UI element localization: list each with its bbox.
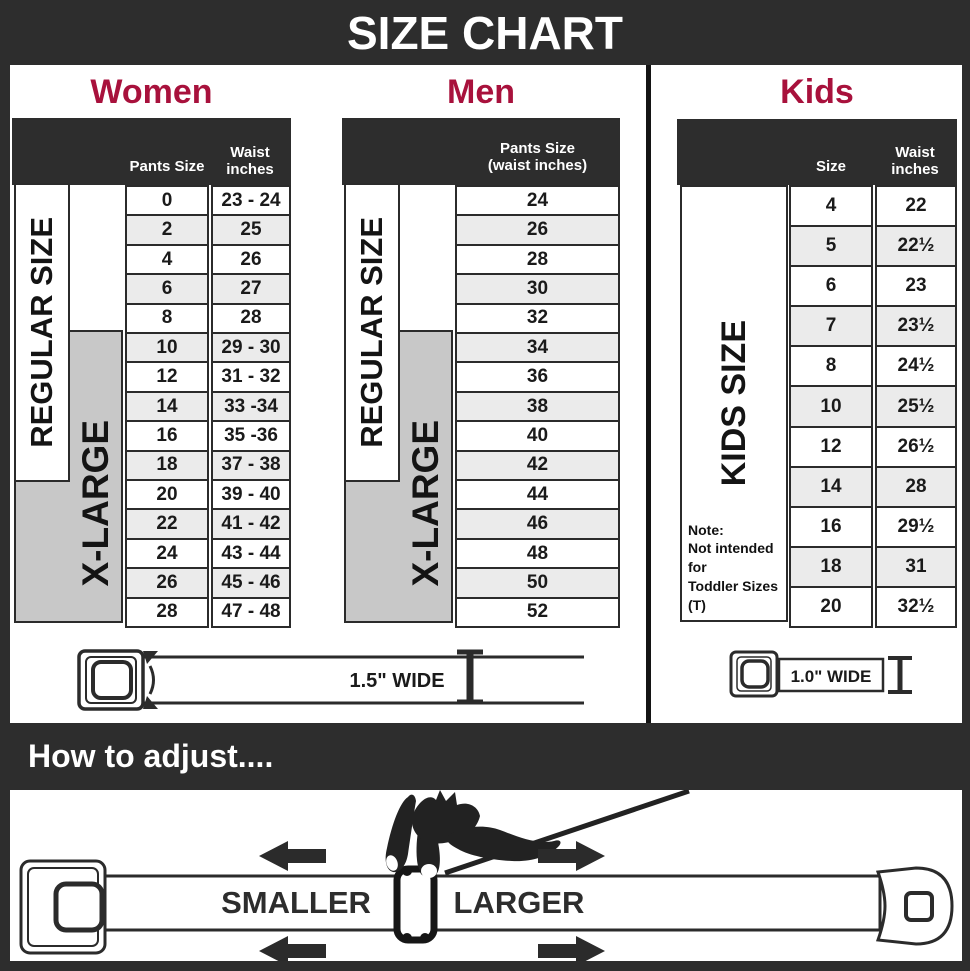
table-row: 14 28 (789, 466, 957, 508)
table-row: 52 (455, 597, 620, 628)
arrow-left-icon (259, 841, 326, 871)
belt-width-label: 1.0" WIDE (791, 667, 872, 686)
pants-size-cell: 32 (455, 303, 620, 334)
waist-header-line2: inches (891, 161, 939, 179)
kids-size-table: Size Waist inches KIDS SIZE Note: Not in… (677, 119, 957, 628)
adjust-heading: How to adjust.... (0, 738, 273, 775)
men-header-line2: (waist inches) (488, 157, 587, 175)
women-size-table: Pants Size Waist inches REGULAR SIZE X-L… (12, 118, 291, 628)
kids-size-cell: 7 (789, 305, 873, 347)
waist-cell: 29 - 30 (211, 332, 291, 363)
pants-size-cell: 48 (455, 538, 620, 569)
kids-waist-header: Waist inches (873, 144, 957, 185)
women-rows: 0 23 - 24 2 25 4 26 6 27 8 28 10 29 - 30… (125, 185, 291, 628)
pants-size-cell: 42 (455, 450, 620, 481)
waist-cell: 35 -36 (211, 420, 291, 451)
table-row: 6 23 (789, 265, 957, 307)
section-divider (646, 65, 651, 723)
fingertip (421, 864, 437, 878)
table-row: 26 45 - 46 (125, 567, 291, 598)
waist-cell: 23 (875, 265, 957, 307)
kids-size-label: KIDS SIZE (715, 320, 754, 486)
waist-cell: 39 - 40 (211, 479, 291, 510)
kids-heading: Kids (677, 71, 957, 113)
pants-size-cell: 12 (125, 361, 209, 392)
belt-width-label: 1.5" WIDE (349, 670, 444, 692)
size-chart-infographic: { "title": "SIZE CHART", "colors": { "fr… (0, 0, 970, 971)
pants-size-cell: 16 (125, 420, 209, 451)
pants-size-cell: 40 (455, 420, 620, 451)
belt-tip (878, 868, 952, 944)
kids-size-cell: 5 (789, 225, 873, 267)
waist-cell: 23 - 24 (211, 185, 291, 216)
women-heading: Women (12, 71, 291, 113)
waist-cell: 22 (875, 185, 957, 227)
table-row: 4 22 (789, 185, 957, 227)
pants-size-cell: 20 (125, 479, 209, 510)
title-band: SIZE CHART (0, 0, 970, 65)
waist-cell: 43 - 44 (211, 538, 291, 569)
pants-size-cell: 52 (455, 597, 620, 628)
waist-header-line2: inches (226, 161, 274, 179)
women-xlarge-label-wrap: X-LARGE (70, 383, 121, 623)
kids-belt-illustration: 1.0" WIDE (720, 640, 932, 710)
women-xlarge-label: X-LARGE (75, 420, 117, 587)
waist-cell: 31 (875, 546, 957, 588)
kids-size-cell: 12 (789, 426, 873, 468)
pants-size-cell: 10 (125, 332, 209, 363)
waist-cell: 31 - 32 (211, 361, 291, 392)
table-row: 10 29 - 30 (125, 332, 291, 363)
table-row: 34 (455, 332, 620, 363)
pants-size-cell: 26 (455, 214, 620, 245)
men-table-header: Pants Size (waist inches) (342, 118, 620, 185)
pants-size-cell: 34 (455, 332, 620, 363)
adjust-illustration-panel: SMALLER LARGER (10, 790, 962, 961)
pants-size-cell: 24 (455, 185, 620, 216)
table-row: 28 (455, 244, 620, 275)
size-tables-panel: Women Men Kids Pants Size Waist inches R… (10, 65, 962, 723)
kids-size-box: KIDS SIZE Note: Not intended for Toddler… (680, 185, 788, 622)
table-row: 12 26½ (789, 426, 957, 468)
pants-size-cell: 14 (125, 391, 209, 422)
table-row: 16 29½ (789, 506, 957, 548)
pants-size-cell: 28 (455, 244, 620, 275)
kids-size-cell: 16 (789, 506, 873, 548)
kids-size-header: Size (789, 158, 873, 185)
table-row: 24 (455, 185, 620, 216)
waist-cell: 37 - 38 (211, 450, 291, 481)
waist-cell: 22½ (875, 225, 957, 267)
pants-size-cell: 22 (125, 508, 209, 539)
arrow-right-icon (538, 936, 605, 961)
men-pants-size-header: Pants Size (waist inches) (455, 140, 620, 185)
table-row: 42 (455, 450, 620, 481)
table-row: 12 31 - 32 (125, 361, 291, 392)
pants-size-cell: 28 (125, 597, 209, 628)
waist-cell: 25 (211, 214, 291, 245)
table-row: 22 41 - 42 (125, 508, 291, 539)
seatbelt-buckle-icon (79, 651, 143, 709)
kids-table-header: Size Waist inches (677, 119, 957, 185)
kids-size-cell: 14 (789, 466, 873, 508)
waist-cell: 29½ (875, 506, 957, 548)
adjust-diagram: SMALLER LARGER (10, 790, 962, 961)
table-row: 7 23½ (789, 305, 957, 347)
waist-cell: 25½ (875, 385, 957, 427)
waist-cell: 24½ (875, 345, 957, 387)
waist-cell: 28 (211, 303, 291, 334)
table-row: 48 (455, 538, 620, 569)
table-row: 16 35 -36 (125, 420, 291, 451)
table-row: 8 24½ (789, 345, 957, 387)
pants-size-cell: 4 (125, 244, 209, 275)
table-row: 18 37 - 38 (125, 450, 291, 481)
waist-header-line1: Waist (895, 144, 934, 162)
table-row: 0 23 - 24 (125, 185, 291, 216)
pants-size-cell: 38 (455, 391, 620, 422)
buckle-window (56, 884, 102, 930)
table-row: 20 32½ (789, 586, 957, 628)
pants-size-cell: 50 (455, 567, 620, 598)
waist-cell: 32½ (875, 586, 957, 628)
pants-size-cell: 30 (455, 273, 620, 304)
adjust-band: How to adjust.... (0, 723, 970, 790)
note-line2: Not intended for (688, 539, 786, 577)
table-row: 30 (455, 273, 620, 304)
men-heading: Men (342, 71, 620, 113)
kids-size-cell: 18 (789, 546, 873, 588)
waist-cell: 45 - 46 (211, 567, 291, 598)
men-rows: 24 26 28 30 32 34 36 38 40 42 44 46 (455, 185, 620, 628)
table-row: 6 27 (125, 273, 291, 304)
kids-size-cell: 4 (789, 185, 873, 227)
table-row: 32 (455, 303, 620, 334)
waist-cell: 27 (211, 273, 291, 304)
women-waist-header: Waist inches (209, 144, 291, 185)
kids-rows: 4 22 5 22½ 6 23 7 23½ 8 24½ 10 25½ 12 26… (789, 185, 957, 628)
larger-label: LARGER (454, 885, 585, 920)
table-row: 24 43 - 44 (125, 538, 291, 569)
women-regular-box: REGULAR SIZE (14, 183, 70, 482)
page-title: SIZE CHART (347, 6, 623, 60)
waist-cell: 47 - 48 (211, 597, 291, 628)
women-pants-size-header: Pants Size (125, 158, 209, 185)
waist-cell: 23½ (875, 305, 957, 347)
waist-cell: 41 - 42 (211, 508, 291, 539)
table-row: 20 39 - 40 (125, 479, 291, 510)
men-size-table: Pants Size (waist inches) REGULAR SIZE X… (342, 118, 620, 628)
kids-size-cell: 10 (789, 385, 873, 427)
waist-cell: 28 (875, 466, 957, 508)
arrow-left-icon (259, 936, 326, 961)
seatbelt-buckle-icon (21, 861, 105, 953)
pants-size-cell: 26 (125, 567, 209, 598)
note-line1: Note: (688, 521, 786, 540)
waist-cell: 33 -34 (211, 391, 291, 422)
table-row: 5 22½ (789, 225, 957, 267)
table-row: 50 (455, 567, 620, 598)
men-xlarge-label-wrap: X-LARGE (400, 383, 451, 623)
pants-size-cell: 44 (455, 479, 620, 510)
waist-cell: 26½ (875, 426, 957, 468)
men-xlarge-label: X-LARGE (405, 420, 447, 587)
pants-size-cell: 2 (125, 214, 209, 245)
waist-header-line1: Waist (230, 144, 269, 162)
pants-size-cell: 18 (125, 450, 209, 481)
waist-cell: 26 (211, 244, 291, 275)
table-row: 26 (455, 214, 620, 245)
belt-adjuster-slider (397, 869, 434, 940)
pants-size-cell: 8 (125, 303, 209, 334)
pants-size-cell: 36 (455, 361, 620, 392)
table-row: 40 (455, 420, 620, 451)
women-table-header: Pants Size Waist inches (12, 118, 291, 185)
men-regular-size-label: REGULAR SIZE (354, 217, 390, 448)
women-regular-size-label: REGULAR SIZE (24, 217, 60, 448)
kids-size-cell: 8 (789, 345, 873, 387)
table-row: 10 25½ (789, 385, 957, 427)
table-row: 14 33 -34 (125, 391, 291, 422)
table-row: 28 47 - 48 (125, 597, 291, 628)
table-row: 4 26 (125, 244, 291, 275)
table-row: 38 (455, 391, 620, 422)
table-row: 46 (455, 508, 620, 539)
men-header-line1: Pants Size (500, 140, 575, 158)
table-row: 8 28 (125, 303, 291, 334)
kids-note: Note: Not intended for Toddler Sizes (T) (688, 521, 786, 615)
pants-size-cell: 0 (125, 185, 209, 216)
table-row: 36 (455, 361, 620, 392)
tip-hole (906, 893, 932, 920)
kids-size-cell: 6 (789, 265, 873, 307)
pants-size-cell: 6 (125, 273, 209, 304)
pants-size-cell: 24 (125, 538, 209, 569)
men-regular-box: REGULAR SIZE (344, 183, 400, 482)
kids-size-cell: 20 (789, 586, 873, 628)
adult-belt-illustration: 1.5" WIDE (60, 640, 600, 720)
note-line3: Toddler Sizes (T) (688, 577, 786, 615)
pants-size-cell: 46 (455, 508, 620, 539)
smaller-label: SMALLER (221, 885, 371, 920)
table-row: 2 25 (125, 214, 291, 245)
table-row: 18 31 (789, 546, 957, 588)
table-row: 44 (455, 479, 620, 510)
